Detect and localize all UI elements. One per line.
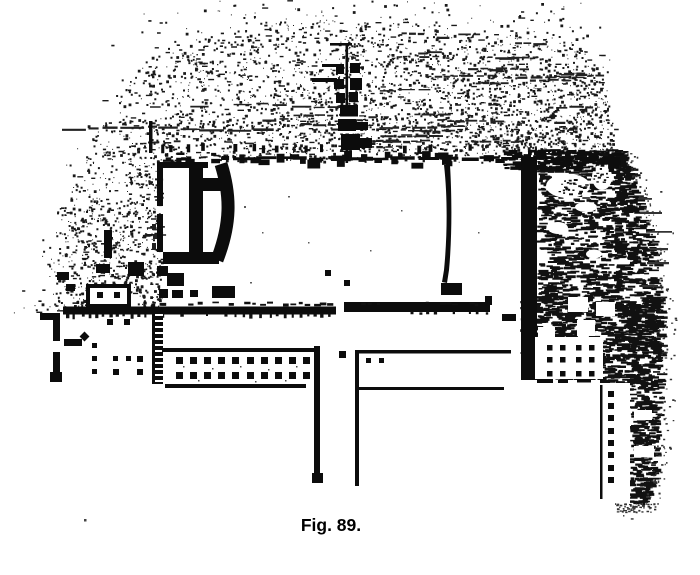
svg-text:Fig. 89.: Fig. 89.	[301, 515, 361, 535]
